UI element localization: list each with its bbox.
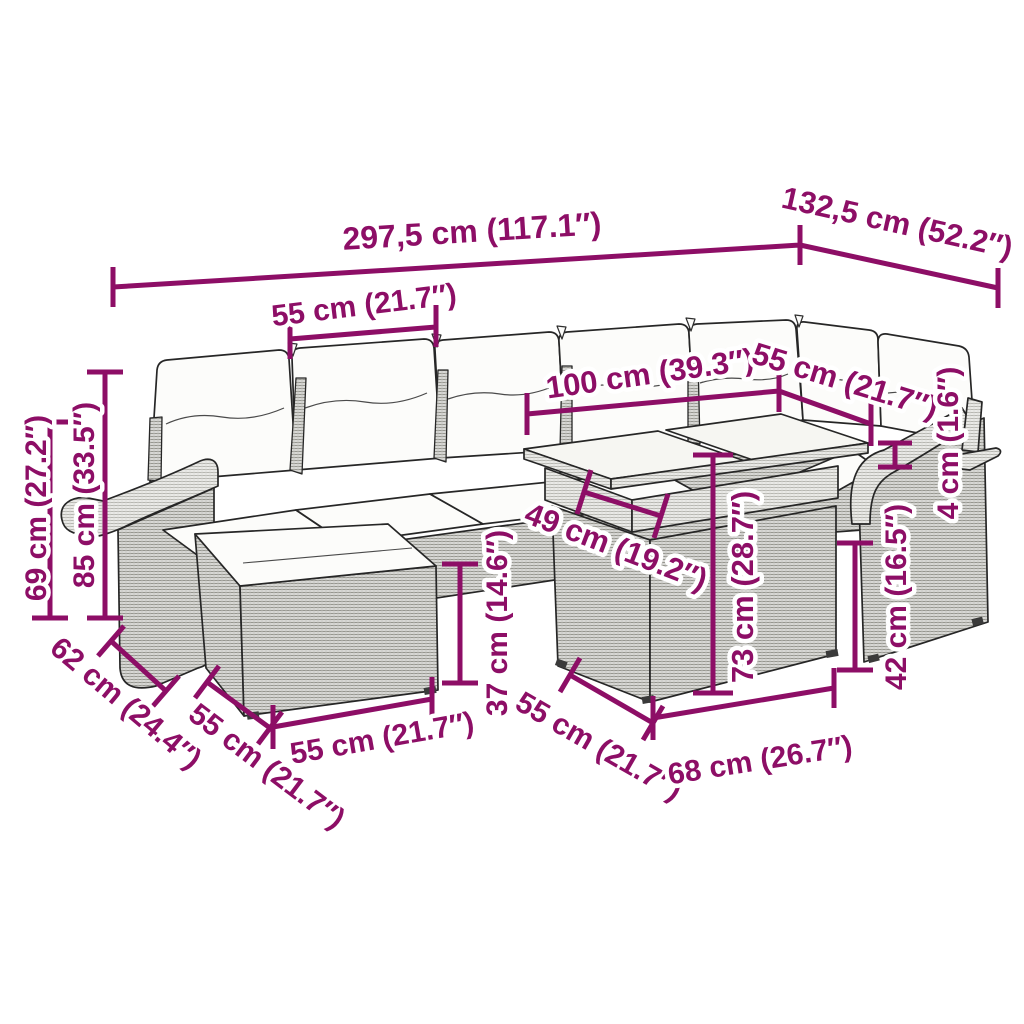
diagram-canvas: 297,5 cm (117.1″) 132,5 cm (52.2″) 55 cm…	[0, 0, 1024, 1024]
ottoman-front-face	[240, 566, 438, 716]
dim-ottoman-height-label: 37 cm (14.6″)	[481, 530, 514, 716]
dim-total-height-label: 85 cm (33.5″)	[68, 402, 101, 588]
back-cushion	[150, 350, 296, 482]
dim-seat-height-label: 42 cm (16.5″)	[880, 504, 913, 690]
product-dimension-diagram: 297,5 cm (117.1″) 132,5 cm (52.2″) 55 cm…	[0, 0, 1024, 1024]
dim-table-height-label: 73 cm (28.7″)	[725, 491, 760, 683]
dim-backrest-height-label: 69 cm (27.2″)	[20, 415, 53, 601]
dim-table-base-width-label: 68 cm (26.7″)	[666, 730, 855, 792]
ottoman	[195, 524, 438, 720]
dim-ottoman-front-width-label: 55 cm (21.7″)	[288, 706, 477, 771]
dim-total-width-label: 297,5 cm (117.1″)	[341, 205, 602, 257]
dim-module-width-label: 55 cm (21.7″)	[270, 278, 459, 333]
dim-total-depth-label: 132,5 cm (52.2″)	[779, 180, 1016, 265]
dim-armrest-cap-thickness-label: 4 cm (1.6″)	[932, 367, 965, 520]
back-cushion	[435, 332, 565, 458]
dim-seat-module-depth-label: 55 cm (21.7″)	[510, 686, 688, 808]
